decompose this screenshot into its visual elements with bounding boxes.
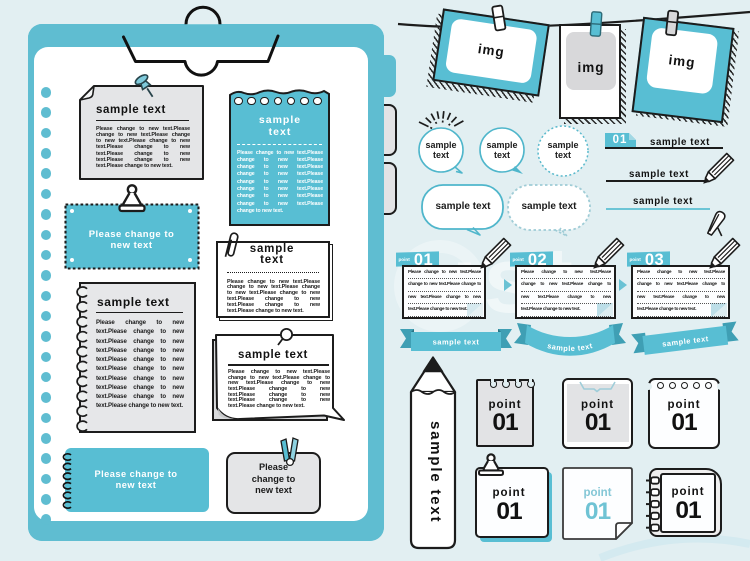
svg-text:sample text: sample text <box>433 338 480 347</box>
